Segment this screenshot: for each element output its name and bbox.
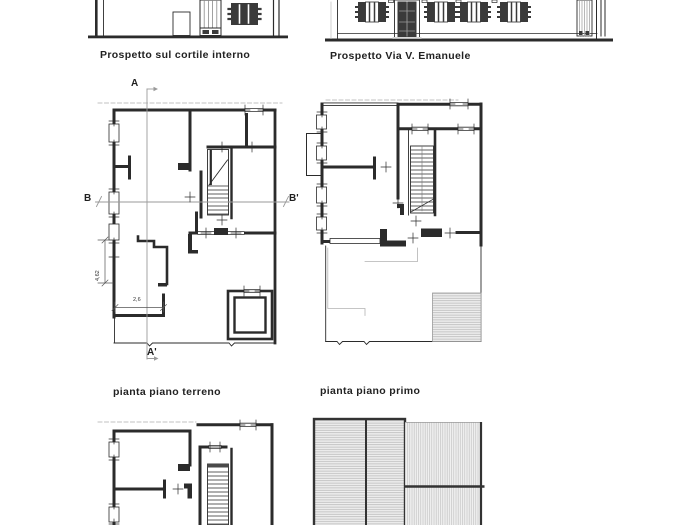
caption-elevation-street: Prospetto Via V. Emanuele xyxy=(330,50,471,62)
section-marker-b-right: B' xyxy=(289,193,299,204)
section-line-b xyxy=(96,197,290,207)
door-opening xyxy=(173,12,190,36)
courtyard-boundary xyxy=(114,343,274,346)
pole xyxy=(95,0,98,36)
caption-plan-ground: pianta piano terreno xyxy=(113,386,221,398)
elevation-courtyard-drawing xyxy=(88,0,288,38)
caption-plan-first: pianta piano primo xyxy=(320,385,420,397)
side-gate xyxy=(577,0,592,36)
section-line-a xyxy=(147,87,159,361)
plan-second-partial-drawing xyxy=(98,420,272,525)
opening-ticks xyxy=(109,420,261,525)
ground-line xyxy=(325,39,613,42)
wall-corner xyxy=(597,0,606,39)
second-plan-walls xyxy=(114,425,272,525)
annex-roof-hatch xyxy=(433,293,482,342)
shuttered-window xyxy=(229,3,261,25)
dimension-label-vertical: 4,62 xyxy=(95,270,101,281)
ground-plan-walls xyxy=(114,110,275,343)
roof-left-pitch xyxy=(314,419,405,525)
plan-ground-drawing xyxy=(96,87,290,361)
ground-plan-staircase xyxy=(208,150,229,216)
louvered-door xyxy=(200,0,221,36)
first-plan-staircase xyxy=(411,146,434,213)
ground-plan-annex xyxy=(228,288,272,339)
section-marker-a-top: A xyxy=(131,78,138,89)
elevation-street-drawing xyxy=(325,0,613,42)
plan-first-drawing xyxy=(307,99,482,345)
roof-right-pitch xyxy=(405,422,481,525)
dimension-label-horizontal: 2,6 xyxy=(133,297,141,303)
wall-corner xyxy=(274,0,280,36)
caption-elevation-courtyard: Prospetto sul cortile interno xyxy=(100,49,250,61)
second-plan-staircase xyxy=(208,464,229,525)
drawing-canvas xyxy=(0,0,700,525)
section-marker-a-bottom: A' xyxy=(147,347,157,358)
architectural-drawing-sheet: Prospetto sul cortile interno Prospetto … xyxy=(0,0,700,525)
first-plan-openings xyxy=(412,101,474,131)
first-plan-walls xyxy=(322,103,481,245)
roof-plan-drawing xyxy=(314,419,485,525)
shuttered-windows-row xyxy=(356,2,530,22)
main-door xyxy=(393,0,422,39)
section-marker-b-left: B xyxy=(84,193,91,204)
